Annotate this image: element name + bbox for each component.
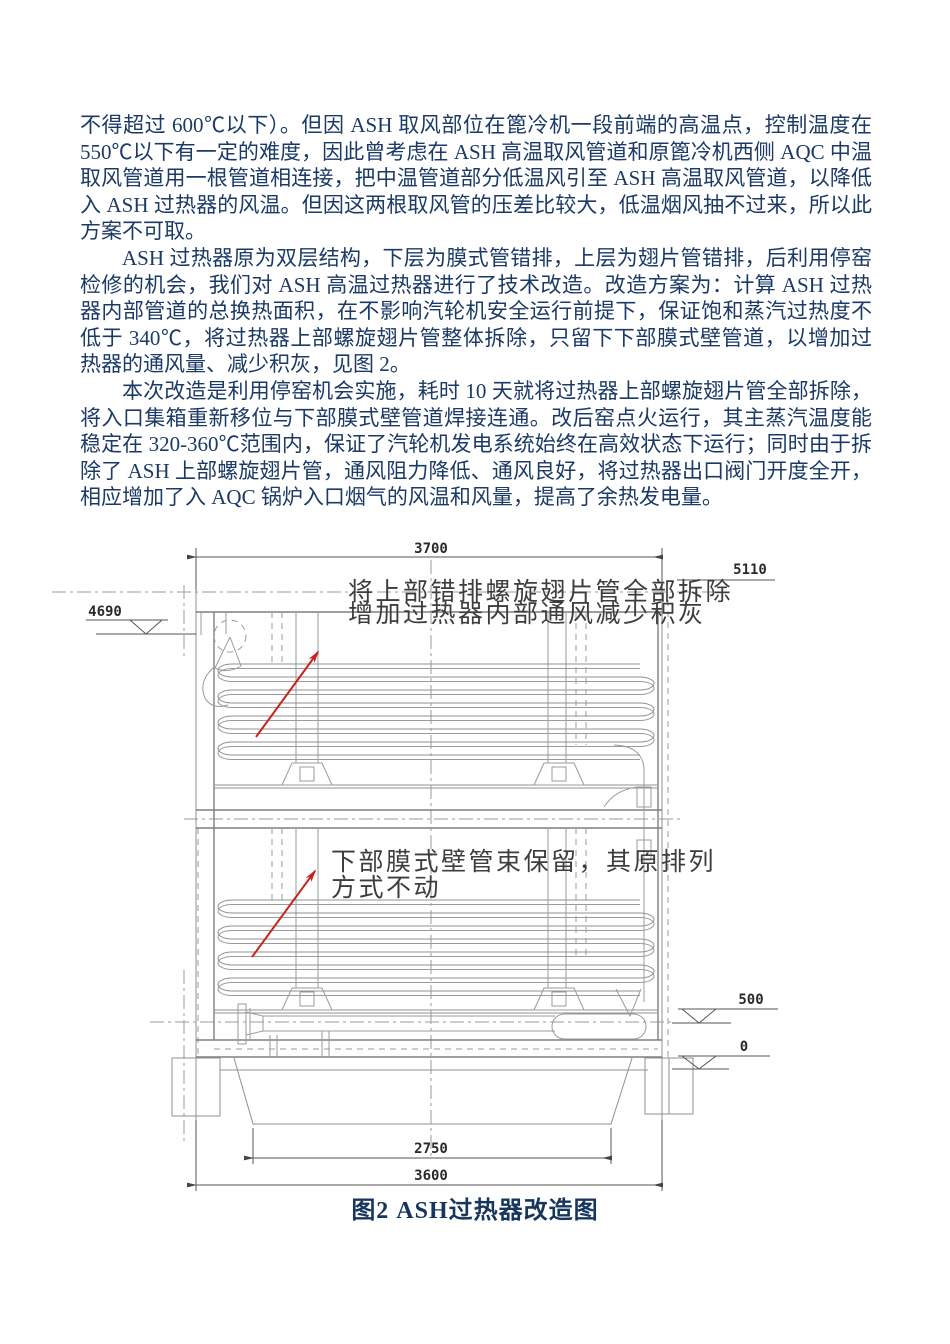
upper-finned-tube-bundle — [218, 664, 654, 760]
elev-4690-label: 4690 — [88, 604, 122, 620]
upper-annotation-line2: 增加过热器内部通风减少积灰 — [348, 600, 706, 628]
lower-annotation-line1: 下部膜式壁管束保留，其原排列 — [331, 848, 716, 876]
inlet-header-nozzle — [238, 1004, 646, 1057]
paragraph-2: ASH 过热器原为双层结构，下层为膜式管错排，上层为翅片管错排，后利用停窑检修的… — [80, 245, 872, 378]
steam-outlet-detail — [201, 612, 246, 706]
dimension-width-hopper: 2750 — [253, 1128, 611, 1164]
lower-red-arrow — [252, 871, 315, 957]
article-text: 不得超过 600℃以下）。但因 ASH 取风部位在篦冷机一段前端的高温点，控制温… — [80, 112, 872, 511]
paragraph-1: 不得超过 600℃以下）。但因 ASH 取风部位在篦冷机一段前端的高温点，控制温… — [80, 112, 872, 245]
elevation-0: 0 — [672, 1039, 770, 1069]
leader-arrows — [252, 652, 318, 957]
figure-ash-superheater-drawing: 3700 5110 4690 500 0 2750 3600 — [0, 540, 950, 1200]
paragraph-3: 本次改造是利用停窑机会实施，耗时 10 天就将过热器上部螺旋翅片管全部拆除，将入… — [80, 378, 872, 511]
dim-3600-label: 3600 — [414, 1168, 448, 1184]
support-legs-and-hopper — [172, 1058, 693, 1124]
dim-2750-label: 2750 — [414, 1141, 448, 1157]
engineering-drawing-svg: 3700 5110 4690 500 0 2750 3600 — [0, 540, 950, 1200]
elev-0-label: 0 — [740, 1039, 748, 1055]
dim-3700-label: 3700 — [414, 541, 448, 557]
lower-annotation-line2: 方式不动 — [331, 874, 441, 902]
elev-500-label: 500 — [738, 992, 763, 1008]
elev-5110-label: 5110 — [733, 562, 767, 578]
downcomer-pipe — [604, 745, 651, 1016]
figure-caption: 图2 ASH过热器改造图 — [0, 1190, 950, 1225]
drawing-annotations: 将上部错排螺旋翅片管全部拆除 增加过热器内部通风减少积灰 下部膜式壁管束保留，其… — [331, 578, 733, 902]
elevation-4690: 4690 — [86, 604, 196, 634]
elevation-500: 500 — [672, 992, 778, 1023]
document-page: { "article": { "text_color": "#1b3a66", … — [0, 0, 950, 1344]
